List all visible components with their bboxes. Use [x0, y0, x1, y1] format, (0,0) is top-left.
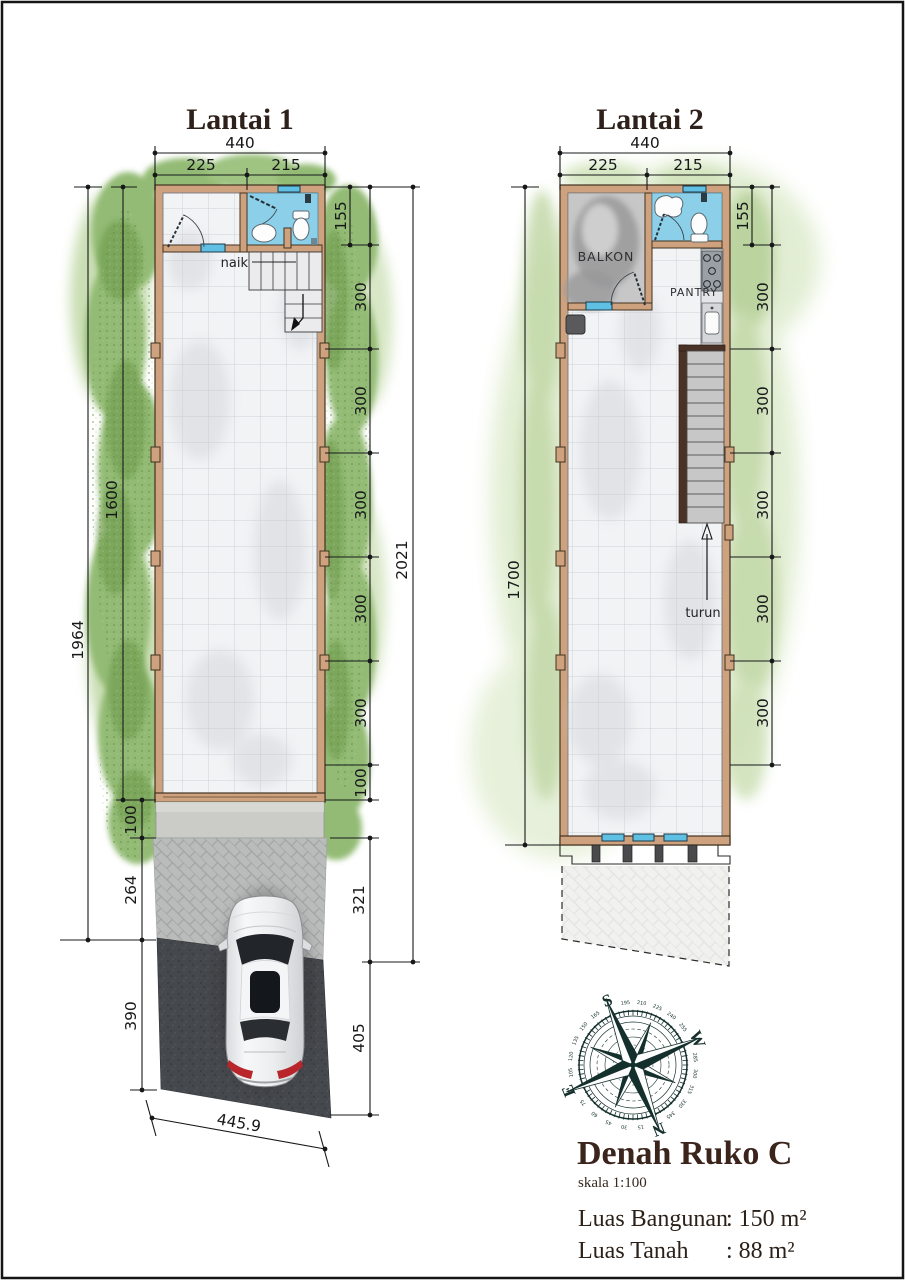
floor1-dim-lower2: 405 — [350, 1023, 368, 1053]
floor2-stairs — [679, 345, 725, 523]
floor1-dim-seg3: 300 — [352, 490, 370, 520]
compass-star — [539, 971, 726, 1158]
compass-degree-label: 45 — [605, 1118, 613, 1126]
floor1-sink — [252, 224, 276, 242]
compass-degree-label: 195 — [620, 1000, 630, 1007]
floor1-floor-drain — [311, 238, 317, 244]
compass-degree-label: 255 — [677, 1022, 688, 1033]
floor2-dim-left-bay: 225 — [588, 156, 618, 174]
floor2-balcony-label: BALKON — [578, 249, 635, 264]
floor1-dim-bath-depth: 155 — [332, 201, 350, 231]
floor2-shower-icon — [701, 193, 707, 202]
building-area-label: Luas Bangunan — [578, 1206, 728, 1232]
floor2-dim-right-bay: 215 — [673, 156, 703, 174]
compass-degree-label: 240 — [666, 1011, 677, 1022]
compass-degree-label: 105 — [568, 1067, 575, 1077]
floor1-dim-right-outer: 2021 — [393, 540, 411, 579]
land-area-value: : 88 m² — [726, 1238, 795, 1264]
compass-rose: 1530456075105120135150165195210225240255… — [539, 971, 726, 1158]
floor2-terrace-outline — [560, 845, 730, 966]
compass-degree-label: 150 — [579, 1021, 590, 1032]
compass-south-label: S — [599, 990, 615, 1011]
compass-east-label: E — [558, 1082, 580, 1100]
compass-degree-label: 165 — [590, 1010, 601, 1021]
pantry-stove — [702, 251, 722, 291]
floor2-dim-seg2: 300 — [754, 386, 772, 416]
floor2-dim-seg4: 300 — [754, 594, 772, 624]
floor1-bathroom — [240, 186, 322, 252]
floor1-dim-paver: 264 — [122, 875, 140, 905]
floor2-front-windows — [592, 834, 697, 862]
floor1-dim-seg1: 300 — [352, 282, 370, 312]
compass-degree-label: 135 — [571, 1035, 580, 1046]
floor1-dim-total-width: 440 — [225, 134, 255, 152]
floor1-dim-seg4: 300 — [352, 594, 370, 624]
floor1-shower-icon — [305, 194, 311, 203]
floor1-dim-seg2: 300 — [352, 386, 370, 416]
pantry-sink — [702, 303, 722, 343]
floor2-balcony-window — [586, 302, 612, 310]
floor1-dim-lower1: 321 — [350, 885, 368, 915]
floor2-stairs-label: turun — [685, 606, 720, 621]
floor2-title: Lantai 2 — [596, 103, 704, 136]
floor2-bathroom-window — [683, 186, 706, 192]
compass-degree-label: 120 — [568, 1051, 575, 1061]
floor1-foyer-window — [201, 244, 225, 252]
floor1-dim-seg5: 300 — [352, 698, 370, 728]
compass-degree-label: 300 — [691, 1068, 698, 1078]
floor1-dim-left-bay: 225 — [186, 156, 216, 174]
compass-degree-label: 225 — [652, 1003, 663, 1012]
car-sunroof — [250, 971, 280, 1013]
floor2-dim-seg3: 300 — [754, 490, 772, 520]
compass-degree-label: 285 — [691, 1052, 698, 1062]
compass-degree-label: 315 — [685, 1084, 694, 1095]
compass-degree-label: 75 — [579, 1098, 588, 1107]
floor2-dim-seg1: 300 — [754, 282, 772, 312]
title-block: Denah Ruko C skala 1:100 Luas Bangunan :… — [577, 1135, 807, 1264]
floor1-bathroom-window — [278, 186, 300, 192]
floor1-dim-seg6: 100 — [352, 768, 370, 798]
floor1-dim-terrace: 100 — [122, 805, 140, 835]
floor2-dim-total-width: 440 — [630, 134, 660, 152]
compass-degree-label: 210 — [636, 1000, 646, 1007]
floor1-dim-right-bay: 215 — [271, 156, 301, 174]
compass-west-label: W — [686, 1028, 710, 1051]
floor1-stairs-label: naik — [221, 256, 249, 271]
floorplan-drawing: naik — [0, 0, 905, 1280]
floor2-bathroom — [652, 186, 722, 248]
floor1-plan: naik — [151, 185, 331, 1118]
compass-degree-label: 60 — [590, 1110, 599, 1119]
compass-degree-label: 30 — [621, 1123, 628, 1130]
drawing-scale: skala 1:100 — [578, 1175, 647, 1191]
floor1-dim-asphalt: 390 — [122, 1001, 140, 1031]
floor1-title: Lantai 1 — [186, 103, 294, 136]
floor2-dim-seg5: 300 — [754, 698, 772, 728]
floor2-toilet — [691, 213, 708, 242]
land-area-label: Luas Tanah — [578, 1238, 689, 1264]
compass-degree-label: 15 — [637, 1123, 644, 1130]
floor1-dim-bottom: 445.9 — [215, 1110, 262, 1135]
floor2-appliance — [566, 315, 585, 334]
drawing-title: Denah Ruko C — [577, 1135, 792, 1172]
floor1-dim-left-inner: 1600 — [103, 480, 121, 519]
floor1-dim-left-outer: 1964 — [69, 620, 87, 659]
car — [217, 888, 313, 1092]
floor2-balcony: BALKON — [564, 193, 652, 310]
floor2-pantry-label: PANTRY — [670, 286, 718, 299]
floor1-toilet — [293, 211, 309, 240]
compass-degree-label: 345 — [665, 1109, 676, 1120]
floorplan-sheet: naik — [0, 0, 905, 1280]
floor2-sink — [655, 196, 683, 217]
compass-degree-label: 330 — [677, 1098, 688, 1109]
floor2-dim-left-outer: 1700 — [505, 560, 523, 599]
building-area-value: : 150 m² — [726, 1206, 807, 1232]
floor2-dim-bath-depth: 155 — [734, 201, 752, 231]
